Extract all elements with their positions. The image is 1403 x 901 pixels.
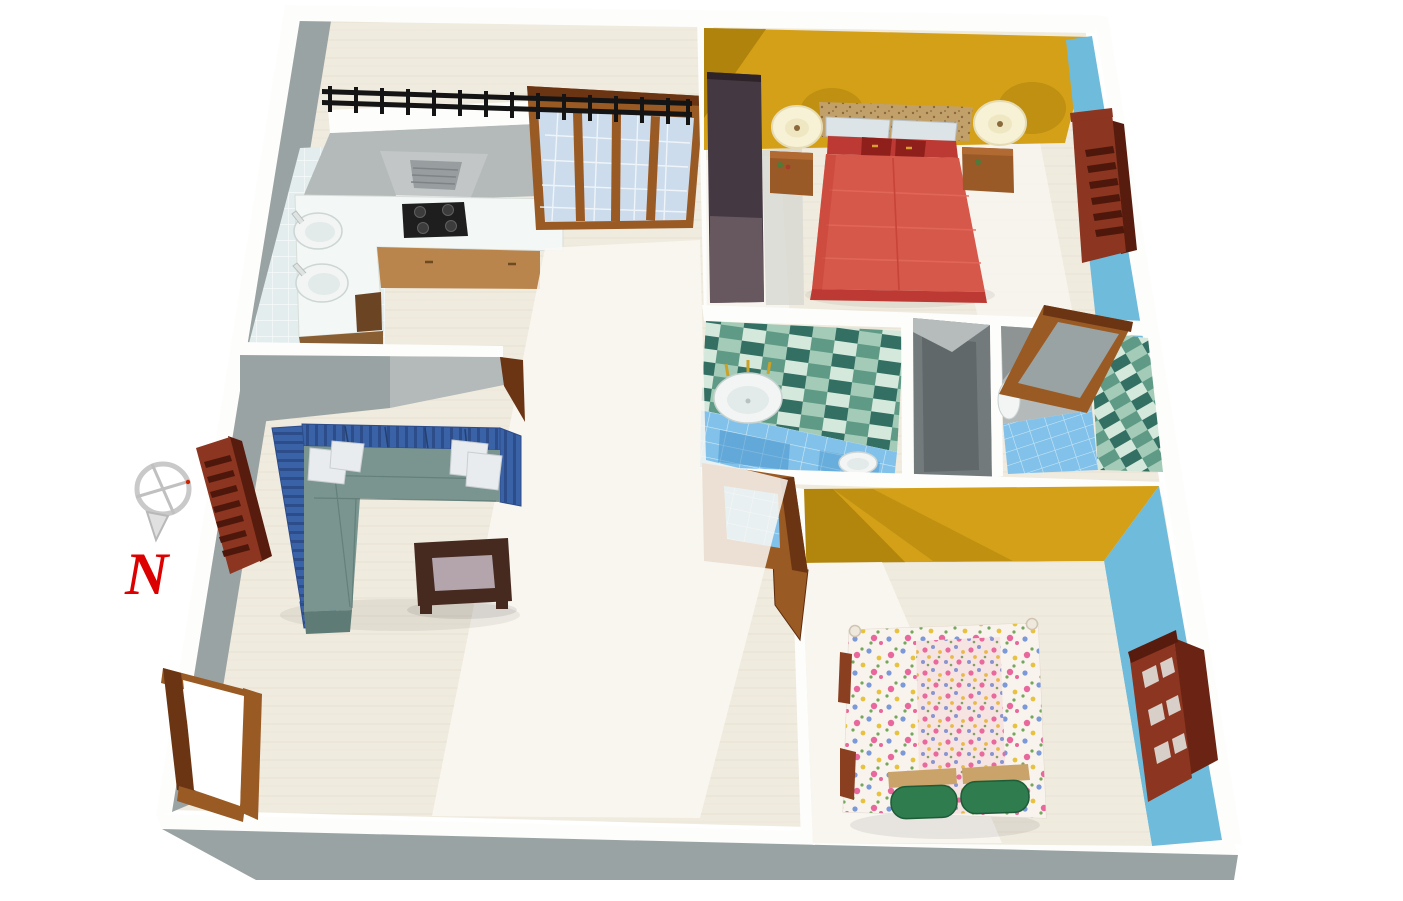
headboard-knob: [1027, 619, 1038, 630]
kitchen-cabinet-face: [377, 247, 540, 289]
wardrobe-lower: [710, 216, 764, 303]
sofa-front-face: [304, 610, 352, 634]
plant: [975, 159, 981, 165]
pillow: [891, 120, 957, 141]
floral-bed: [838, 619, 1046, 840]
nightstand-left: [770, 151, 813, 196]
wardrobe: [707, 72, 764, 303]
toilet-bowl: [847, 458, 869, 470]
master-bedroom: [704, 28, 1143, 338]
throw-pillow: [330, 441, 364, 472]
table-leg: [496, 599, 508, 609]
closet-interior-dark: [922, 336, 979, 472]
pillow: [826, 117, 890, 139]
sofa-arm-right: [500, 428, 521, 506]
kitchen-lower-cabinet: [355, 292, 382, 332]
table-lamp-right: [974, 101, 1026, 145]
plant: [777, 162, 783, 168]
green-pillow: [890, 785, 957, 819]
table-leg: [420, 604, 432, 614]
master-bed: [805, 102, 995, 308]
bathroom-1: [700, 321, 904, 481]
nightstand-right: [962, 147, 1014, 193]
bed-side-rail: [838, 652, 852, 704]
closet-wall-band: [901, 315, 914, 480]
table-inlay: [432, 555, 495, 591]
cooktop: [402, 202, 468, 238]
window-mullion: [611, 114, 621, 221]
drain: [746, 399, 751, 404]
coffee-table: [407, 538, 517, 619]
accent-pillow: [861, 137, 892, 158]
floorplan-canvas: N: [0, 0, 1403, 901]
north-label: N: [124, 541, 171, 607]
bed-side-rail: [840, 748, 856, 800]
closet-passage: [901, 315, 1003, 480]
table-lamp-left: [772, 106, 822, 148]
throw-pillow: [466, 452, 502, 490]
plant: [786, 165, 791, 170]
headboard-knob: [850, 626, 861, 637]
compass-east-tick: [186, 480, 190, 484]
green-pillow: [960, 780, 1029, 814]
floorplan-render: N: [0, 0, 1403, 901]
bathrooms: [700, 305, 1163, 481]
